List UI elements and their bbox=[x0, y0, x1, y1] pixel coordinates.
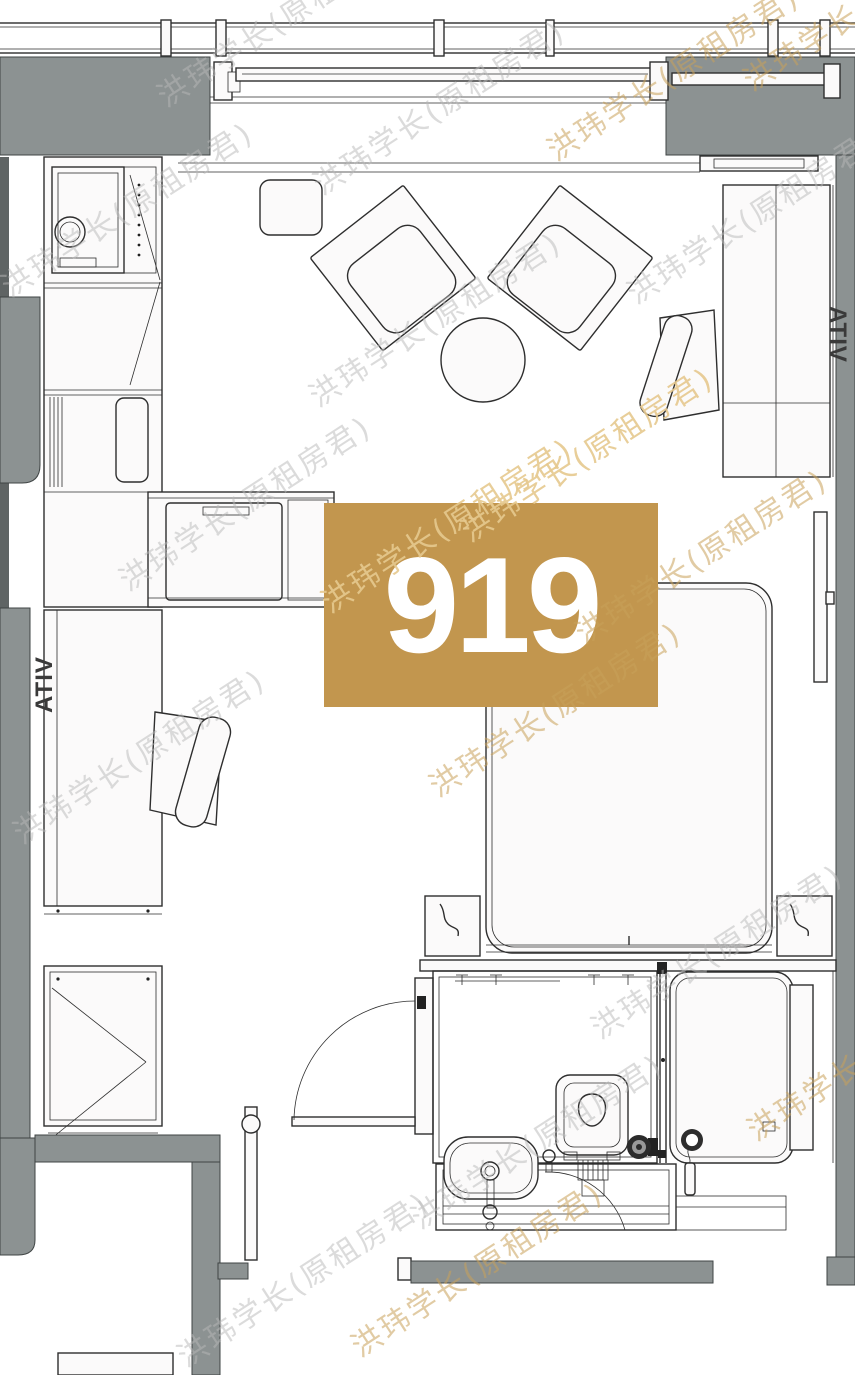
railing-post bbox=[161, 20, 171, 56]
door-side-partition bbox=[242, 1107, 260, 1260]
side-table bbox=[260, 180, 322, 235]
floor-drain-icon bbox=[627, 1135, 658, 1159]
wall-left bbox=[0, 608, 30, 1138]
bathroom-top-wall bbox=[420, 960, 836, 971]
laptop-icon: ATIV bbox=[824, 306, 851, 363]
door-jamb bbox=[415, 978, 433, 1134]
wall-left-block bbox=[0, 297, 40, 483]
nightstand-left bbox=[425, 896, 480, 956]
door-leaf bbox=[292, 1117, 415, 1126]
railing-post bbox=[434, 20, 444, 56]
floorplan-image: ATIV ATIV bbox=[0, 0, 855, 1375]
lower-cabinet bbox=[44, 966, 162, 1138]
bottom-left-opening bbox=[58, 1353, 173, 1375]
round-table bbox=[441, 318, 525, 402]
window-sash bbox=[236, 68, 654, 81]
laptop-icon: ATIV bbox=[31, 656, 58, 713]
window-jamb bbox=[824, 64, 840, 98]
